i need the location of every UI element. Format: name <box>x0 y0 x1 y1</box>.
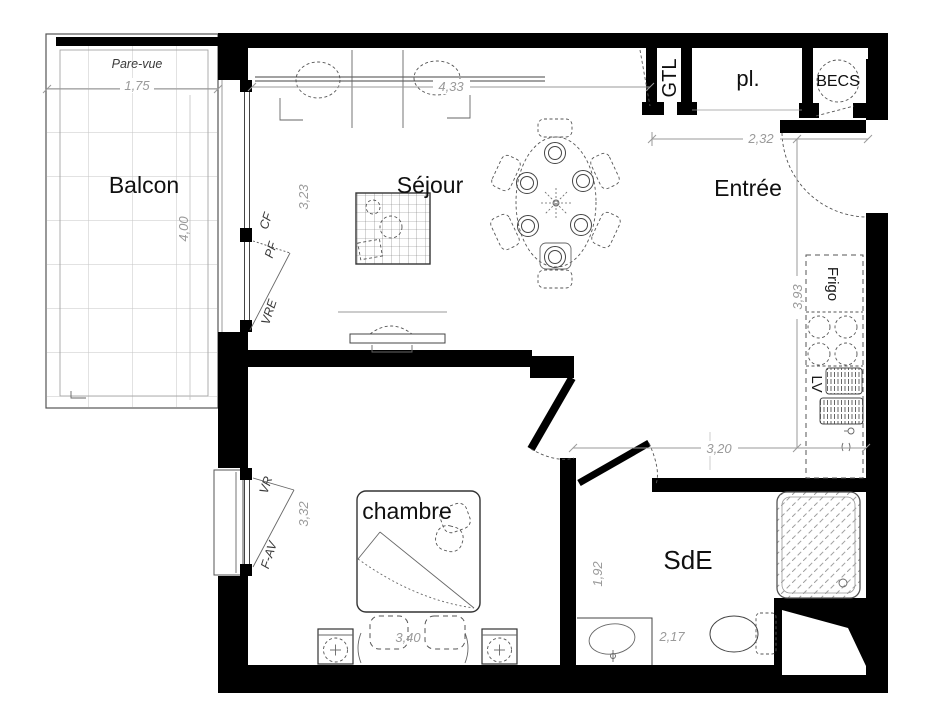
annotation-pare-vue: Pare-vue <box>112 57 163 71</box>
room-label-entry: Entrée <box>714 175 782 201</box>
closet-label-becs: BECS <box>816 73 860 90</box>
dimension-corridor-width: 3,20 <box>706 441 732 456</box>
dimension-shower-room-depth: 1,92 <box>590 561 605 587</box>
appliance-label-fridge: Frigo <box>824 267 841 301</box>
sink <box>820 398 863 424</box>
dimension-balcony-length: 4,00 <box>176 216 191 242</box>
room-label-bedroom: chambre <box>362 498 451 524</box>
dimension-bedroom-depth: 3,32 <box>296 501 311 527</box>
dimension-living-width: 4,33 <box>438 79 464 94</box>
floor-plan-page: Balcon Séjour Entrée chambre SdE GTL pl.… <box>0 0 940 705</box>
dimension-living-depth: 3,23 <box>296 184 311 210</box>
entrance-door-leaf <box>780 120 866 133</box>
closet-label-gtl: GTL <box>659 59 681 98</box>
tv-sideboard <box>350 334 445 343</box>
wall-notch <box>856 48 868 59</box>
nightstand <box>482 629 517 664</box>
privacy-screen-bar <box>56 37 218 46</box>
shower <box>777 492 860 598</box>
dimension-kitchen-run: 3,93 <box>790 284 805 310</box>
room-label-balcony: Balcon <box>109 172 179 198</box>
floor-plan-drawing: Balcon Séjour Entrée chambre SdE GTL pl.… <box>0 0 940 705</box>
room-label-living: Séjour <box>397 172 464 198</box>
room-label-shower-room: SdE <box>663 545 712 575</box>
closet-label-placard: pl. <box>736 66 759 91</box>
appliance-label-dishwasher: LV <box>808 375 825 392</box>
nightstand <box>318 629 353 664</box>
sink-drainer <box>826 368 862 394</box>
dimension-entry-width: 2,32 <box>747 131 774 146</box>
rug <box>356 193 430 264</box>
dimension-bedroom-width: 3,40 <box>395 630 421 645</box>
dimension-balcony-depth: 1,75 <box>124 78 150 93</box>
dimension-shower-room-width: 2,17 <box>658 629 685 644</box>
